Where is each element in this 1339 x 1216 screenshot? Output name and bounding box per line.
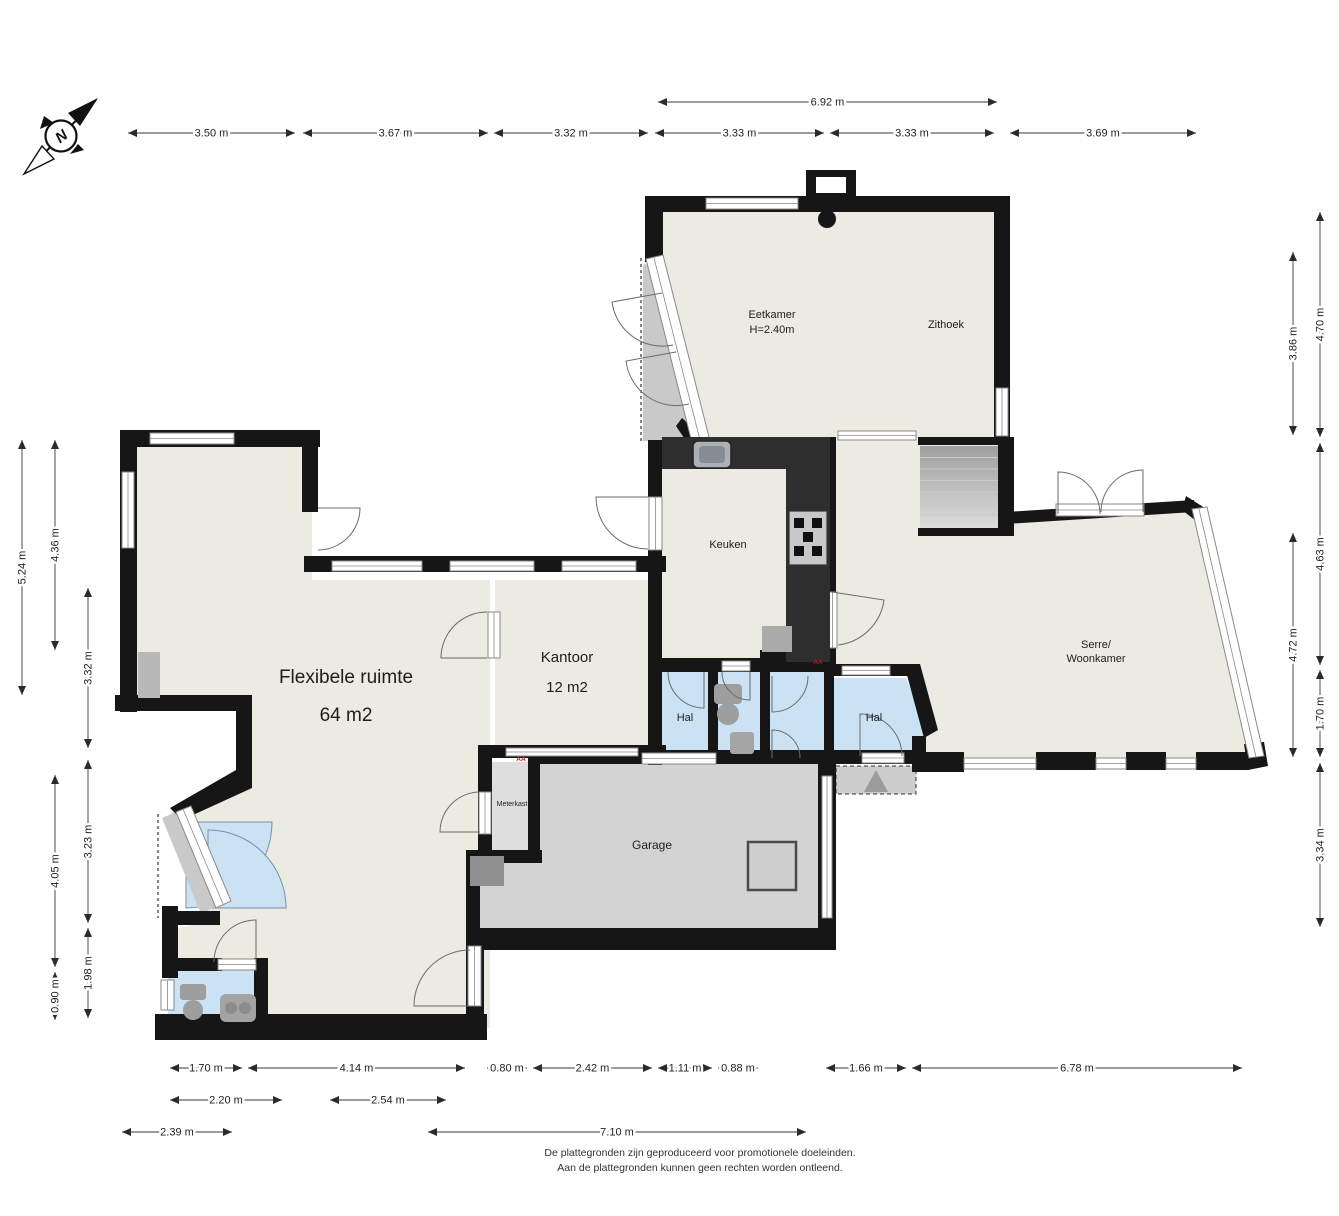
wall — [178, 911, 220, 925]
room-label-serre-woonkamer: Woonkamer — [1066, 653, 1125, 665]
flue-circle — [818, 210, 836, 228]
door-swing — [318, 508, 360, 550]
dimension: 4.36 m — [50, 440, 62, 650]
dimension-label: 0.80 m — [490, 1063, 524, 1075]
dimension-label: 2.20 m — [209, 1095, 243, 1107]
dimension-label: 3.67 m — [379, 128, 413, 140]
radiator — [138, 652, 160, 698]
door-swing — [596, 497, 648, 549]
floors-layer — [128, 205, 1258, 1028]
footer-note: De plattegronden zijn geproduceerd voor … — [544, 1147, 855, 1174]
room-kantoor-floor — [495, 580, 652, 752]
dimension: 6.92 m — [658, 97, 997, 109]
wall — [466, 928, 836, 950]
compass-north-icon: N — [24, 98, 98, 174]
toilet-tank — [714, 684, 742, 704]
dimension-label: 1.11 m — [669, 1063, 702, 1075]
dimension: 4.70 m — [1315, 212, 1327, 437]
wall — [918, 528, 1014, 536]
dimension-label: 0.88 m — [721, 1063, 755, 1075]
dimension-label: 3.50 m — [195, 128, 229, 140]
room-label-flexibele-ruimte: Flexibele ruimte — [279, 667, 413, 688]
dimension: 3.33 m — [655, 128, 824, 140]
floorplan-canvas: EetkamerH=2.40mZithoekKeukenSerre/Woonka… — [0, 0, 1339, 1216]
room-label-hal-east: Hal — [866, 712, 883, 724]
bathroom-toilet-tank — [180, 984, 206, 1000]
dimension-label: 3.32 m — [83, 651, 95, 685]
cooktop-burner — [812, 518, 822, 528]
dimension: 0.80 m — [487, 1063, 527, 1075]
wall — [1126, 752, 1166, 770]
cooktop-burner — [794, 518, 804, 528]
dimension: 3.32 m — [494, 128, 648, 140]
dimension-label: 1.66 m — [849, 1063, 883, 1075]
dimension: 3.34 m — [1315, 763, 1327, 927]
dimension-label: 3.69 m — [1086, 128, 1120, 140]
stairs — [920, 446, 998, 528]
room-label-flexibele-ruimte: 64 m2 — [320, 705, 373, 726]
dimension: 3.33 m — [830, 128, 994, 140]
bathroom-toilet-bowl — [183, 1000, 203, 1020]
toilet-bowl — [717, 703, 739, 725]
dimension-label: 3.33 m — [723, 128, 757, 140]
dimension: 4.63 m — [1315, 443, 1327, 665]
cabinet — [762, 626, 792, 652]
wall — [645, 196, 663, 262]
dimension: 1.66 m — [826, 1063, 906, 1075]
dimension-label: 1.98 m — [83, 956, 95, 990]
dimension: 3.67 m — [303, 128, 488, 140]
room-label-eetkamer: H=2.40m — [750, 324, 795, 336]
dimension: 7.10 m — [428, 1127, 806, 1139]
dimension-label: 6.78 m — [1060, 1063, 1094, 1075]
wall — [155, 1014, 487, 1040]
dimension: 2.42 m — [533, 1063, 652, 1075]
cooktop-burner — [794, 546, 804, 556]
wall — [162, 906, 178, 978]
dimension-label: 3.32 m — [554, 128, 588, 140]
compass-south-needle — [24, 146, 54, 174]
dimension-label: 2.39 m — [160, 1127, 194, 1139]
garage-skylight — [748, 842, 796, 890]
room-flexibele-ruimte-floor — [128, 440, 490, 1028]
wall — [912, 752, 964, 772]
kitchen-sink-basin — [699, 446, 725, 463]
chimney-opening — [816, 177, 846, 193]
dimension: 1.70 m — [1315, 670, 1327, 757]
room-label-keuken: Keuken — [709, 539, 746, 551]
dimension: 3.32 m — [83, 588, 95, 748]
dimension-label: 4.72 m — [1288, 628, 1300, 662]
cooktop-burner — [803, 532, 813, 542]
dimension-label: 3.33 m — [895, 128, 929, 140]
dimension-label: 3.23 m — [83, 825, 95, 859]
dimension-label: 4.14 m — [340, 1063, 374, 1075]
aa-marker: AA — [813, 659, 823, 666]
room-label-kantoor: 12 m2 — [546, 679, 588, 696]
cooktop-burner — [812, 546, 822, 556]
dimension: 3.86 m — [1288, 252, 1300, 435]
dimension-label: 2.54 m — [371, 1095, 405, 1107]
dimension-label: 5.24 m — [17, 551, 29, 585]
room-label-eetkamer: Eetkamer — [748, 309, 795, 321]
dimension: 2.20 m — [170, 1095, 282, 1107]
wall — [115, 695, 252, 711]
room-label-serre-woonkamer: Serre/ — [1081, 639, 1112, 651]
dimension-label: 3.34 m — [1315, 828, 1327, 862]
compass-north-needle — [68, 98, 98, 126]
dimension: 1.70 m — [170, 1063, 242, 1075]
footer-line-2: Aan de plattegronden kunnen geen rechten… — [557, 1162, 842, 1174]
wall — [648, 580, 662, 765]
dimension-label: 3.86 m — [1288, 327, 1300, 361]
wall — [1196, 752, 1248, 770]
toilet-sink — [730, 732, 754, 754]
dimension: 2.39 m — [122, 1127, 232, 1139]
dimension: 3.50 m — [128, 128, 295, 140]
room-label-hal-west: Hal — [677, 712, 694, 724]
wall — [176, 958, 222, 971]
dimension-label: 1.70 m — [1315, 697, 1327, 731]
bathroom-basin-bowl — [239, 1002, 251, 1014]
wall — [528, 750, 540, 854]
dimension-label: 4.70 m — [1315, 308, 1327, 342]
room-label-zithoek: Zithoek — [928, 319, 965, 331]
dimension: 5.24 m — [17, 440, 29, 695]
garage-step — [470, 856, 504, 886]
dimension: 0.90 m — [50, 972, 62, 1020]
wall — [1036, 752, 1096, 770]
dimension-label: 4.36 m — [50, 528, 62, 562]
wall — [760, 660, 770, 758]
dimension-label: 4.05 m — [50, 854, 62, 888]
dimension-label: 1.70 m — [189, 1063, 223, 1075]
dimension: 4.05 m — [50, 775, 62, 967]
wall — [708, 660, 718, 758]
dimension: 1.98 m — [83, 928, 95, 1018]
dimension: 2.54 m — [330, 1095, 446, 1107]
dimension: 3.23 m — [83, 760, 95, 923]
dimension: 6.78 m — [912, 1063, 1242, 1075]
wall — [648, 440, 662, 497]
aa-marker: AA — [516, 756, 526, 763]
dimension: 4.72 m — [1288, 533, 1300, 757]
room-label-garage: Garage — [632, 838, 672, 852]
footer-line-1: De plattegronden zijn geproduceerd voor … — [544, 1147, 855, 1159]
dimension-label: 0.90 m — [50, 979, 62, 1013]
bathroom-basin-bowl — [225, 1002, 237, 1014]
dimension-label: 2.42 m — [576, 1063, 610, 1075]
dimension-label: 7.10 m — [600, 1127, 634, 1139]
room-vestibule-floor — [770, 672, 826, 758]
dimension: 1.11 m — [658, 1063, 712, 1075]
dimension-label: 4.63 m — [1315, 537, 1327, 571]
wall — [236, 711, 252, 775]
dimension: 3.69 m — [1010, 128, 1196, 140]
dimension-label: 6.92 m — [811, 97, 845, 109]
room-label-meterkast: Meterkast — [497, 801, 528, 808]
room-label-kantoor: Kantoor — [541, 649, 594, 666]
dimension: 0.88 m — [718, 1063, 758, 1075]
dimension: 4.14 m — [248, 1063, 465, 1075]
floorplan-page: EetkamerH=2.40mZithoekKeukenSerre/Woonka… — [0, 0, 1339, 1216]
